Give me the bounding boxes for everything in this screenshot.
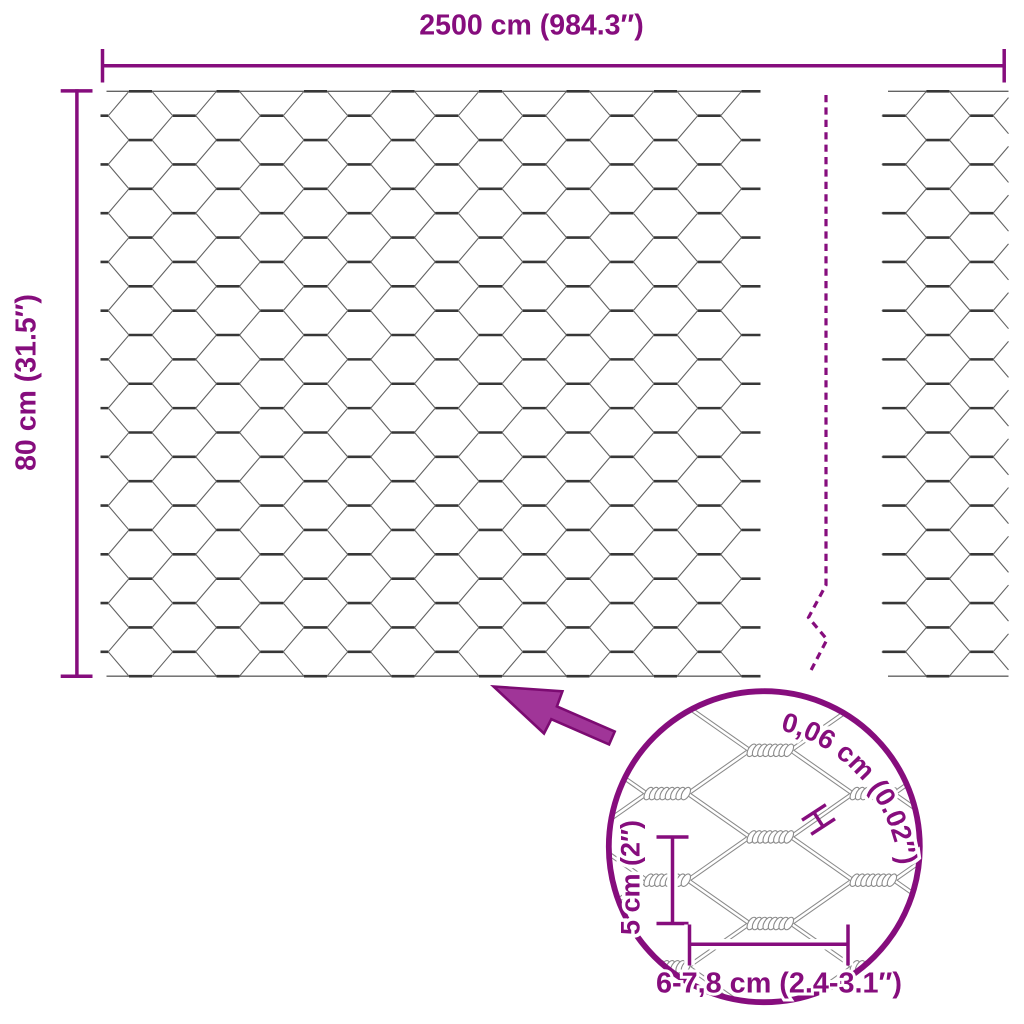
svg-text:2500 cm (984.3″): 2500 cm (984.3″) [419, 10, 643, 42]
svg-text:80 cm (31.5″): 80 cm (31.5″) [11, 294, 43, 471]
svg-text:5 cm (2″): 5 cm (2″) [616, 820, 646, 935]
svg-text:6-7,8 cm (2.4-3.1″): 6-7,8 cm (2.4-3.1″) [656, 967, 902, 999]
